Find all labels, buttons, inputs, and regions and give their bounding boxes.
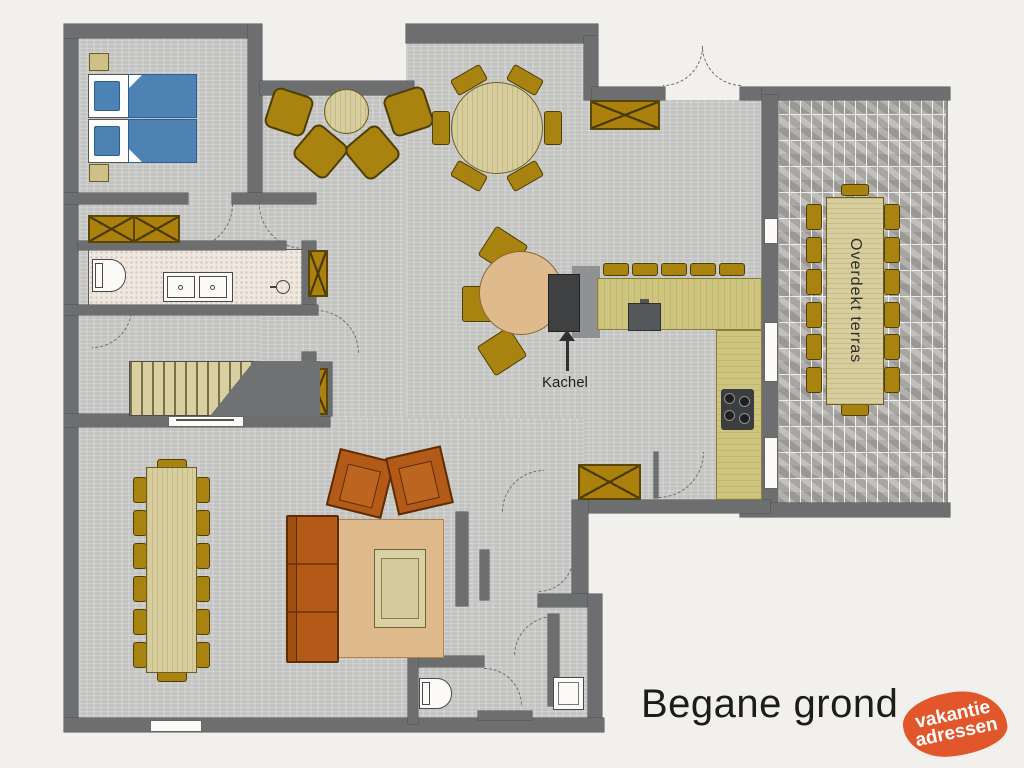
chair — [196, 477, 210, 503]
logo-text: vakantie adressen — [910, 698, 999, 751]
bed-pillow — [94, 81, 120, 111]
chair — [884, 334, 900, 360]
nightstand — [89, 53, 109, 71]
sofa-backrest — [288, 517, 297, 661]
window — [764, 322, 778, 382]
bed-blanket — [128, 74, 197, 118]
window — [168, 416, 244, 427]
wardrobe-x — [310, 252, 326, 295]
chair — [196, 642, 210, 668]
wall — [572, 500, 588, 600]
shower-drain — [276, 280, 290, 294]
wardrobe-x — [592, 102, 658, 128]
burner — [724, 410, 735, 421]
wardrobe-x — [580, 466, 639, 498]
washbasin-inner — [558, 682, 579, 705]
wardrobe-x — [133, 217, 178, 241]
wall — [232, 193, 316, 204]
kitchen-appliance — [628, 303, 661, 331]
wall — [762, 87, 950, 100]
logo: vakantie adressen — [900, 688, 1009, 761]
chair — [661, 263, 687, 276]
stove — [548, 274, 580, 332]
chair — [603, 263, 629, 276]
chair — [133, 477, 147, 503]
wardrobe — [578, 464, 641, 500]
floor-plan: Kachel Overdekt terras Begane grond vaka… — [0, 0, 1024, 768]
chair — [196, 543, 210, 569]
nightstand — [89, 164, 109, 182]
wall — [64, 193, 188, 204]
wall — [740, 503, 950, 517]
coffee-table-top — [381, 558, 419, 619]
stove-label: Kachel — [542, 374, 588, 391]
chair — [133, 510, 147, 536]
wall — [248, 24, 262, 204]
chair — [806, 367, 822, 393]
toilet-tank — [95, 263, 103, 288]
chair — [690, 263, 716, 276]
chair — [841, 404, 869, 416]
wall — [406, 24, 598, 43]
chair — [719, 263, 745, 276]
wardrobe — [308, 250, 328, 297]
lounge-side-table — [324, 89, 369, 134]
window — [764, 218, 778, 244]
door-arc — [663, 46, 703, 86]
bed-pillow — [94, 126, 120, 156]
chair — [196, 576, 210, 602]
burner — [739, 413, 750, 424]
terrace-edge — [946, 100, 948, 505]
chair — [133, 576, 147, 602]
wall — [572, 500, 770, 513]
chair — [133, 642, 147, 668]
chair — [806, 204, 822, 230]
chair — [806, 269, 822, 295]
stove-arrow-head — [559, 330, 575, 341]
wall — [64, 24, 262, 38]
chair — [884, 367, 900, 393]
wall — [478, 711, 532, 720]
terrace-label: Overdekt terras — [826, 197, 884, 405]
shower-drain-stem — [270, 286, 276, 288]
burner — [724, 393, 735, 404]
wardrobe-x — [90, 217, 133, 241]
chair — [196, 510, 210, 536]
wall — [64, 718, 604, 732]
chair — [806, 237, 822, 263]
wall — [592, 87, 665, 100]
chair — [884, 269, 900, 295]
toilet-tank — [422, 682, 430, 705]
wardrobe — [88, 215, 180, 243]
chair — [544, 111, 562, 145]
chair — [806, 334, 822, 360]
wall — [64, 24, 78, 730]
chair — [133, 609, 147, 635]
sofa-cushion-line — [288, 611, 337, 613]
wall — [588, 594, 602, 732]
wall — [456, 512, 468, 606]
sink-drain — [178, 285, 183, 290]
wardrobe — [590, 100, 660, 130]
chair — [196, 609, 210, 635]
chair — [841, 184, 869, 196]
chair — [806, 302, 822, 328]
plan-title: Begane grond — [641, 682, 898, 727]
chair — [884, 237, 900, 263]
stove-arrow — [566, 341, 569, 371]
round-dining-table — [451, 82, 543, 174]
chair — [432, 111, 450, 145]
window — [764, 437, 778, 489]
window — [150, 720, 202, 732]
chair — [884, 204, 900, 230]
sink-drain — [210, 285, 215, 290]
sofa-cushion-line — [288, 563, 337, 565]
wall — [408, 656, 418, 724]
dining-table-left — [146, 467, 197, 673]
kitchen-bar — [597, 278, 762, 330]
wall — [480, 550, 489, 600]
kitchen-appliance-knob — [640, 299, 649, 303]
burner — [739, 396, 750, 407]
bed-blanket — [128, 119, 197, 163]
chair — [632, 263, 658, 276]
chair — [133, 543, 147, 569]
window-rail — [176, 419, 234, 421]
door-arc — [702, 46, 742, 86]
chair — [884, 302, 900, 328]
